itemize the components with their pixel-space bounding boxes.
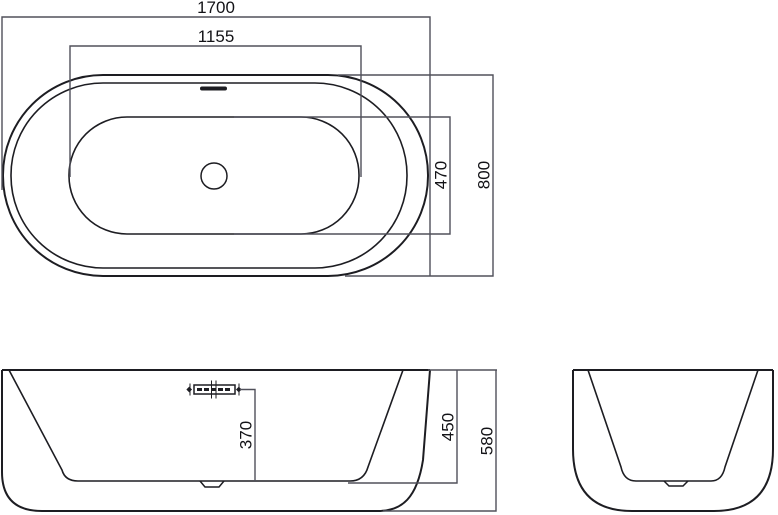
overflow-slot xyxy=(200,87,227,91)
top-view-basin-outline xyxy=(69,117,359,234)
side-view-basin-outline xyxy=(588,370,758,481)
top-view: 1700 1155 470 800 xyxy=(2,0,494,276)
dim-label-basin-length: 1155 xyxy=(198,27,235,46)
drawing-canvas: 1700 1155 470 800 xyxy=(0,0,778,515)
dim-label-inner-depth: 450 xyxy=(439,413,458,441)
front-view: 370 450 580 xyxy=(2,370,497,511)
overflow-fitting xyxy=(186,381,241,399)
dim-label-overall-height: 580 xyxy=(478,427,497,455)
bathtub-technical-drawing: 1700 1155 470 800 xyxy=(0,0,778,515)
dim-line-basin-length xyxy=(70,46,361,177)
dim-label-overall-width: 800 xyxy=(475,161,494,189)
drain-hole xyxy=(201,163,227,189)
side-view-outer-outline xyxy=(573,370,773,511)
dim-line-overall-length xyxy=(2,17,430,276)
top-view-outer-outline xyxy=(3,75,428,276)
dim-label-basin-width: 470 xyxy=(432,161,451,189)
dim-label-overflow-height: 370 xyxy=(237,421,256,449)
overflow-left-marker xyxy=(186,387,192,393)
dim-label-overall-length: 1700 xyxy=(197,0,235,17)
front-view-drain-recess xyxy=(200,481,224,487)
side-view xyxy=(573,370,773,511)
